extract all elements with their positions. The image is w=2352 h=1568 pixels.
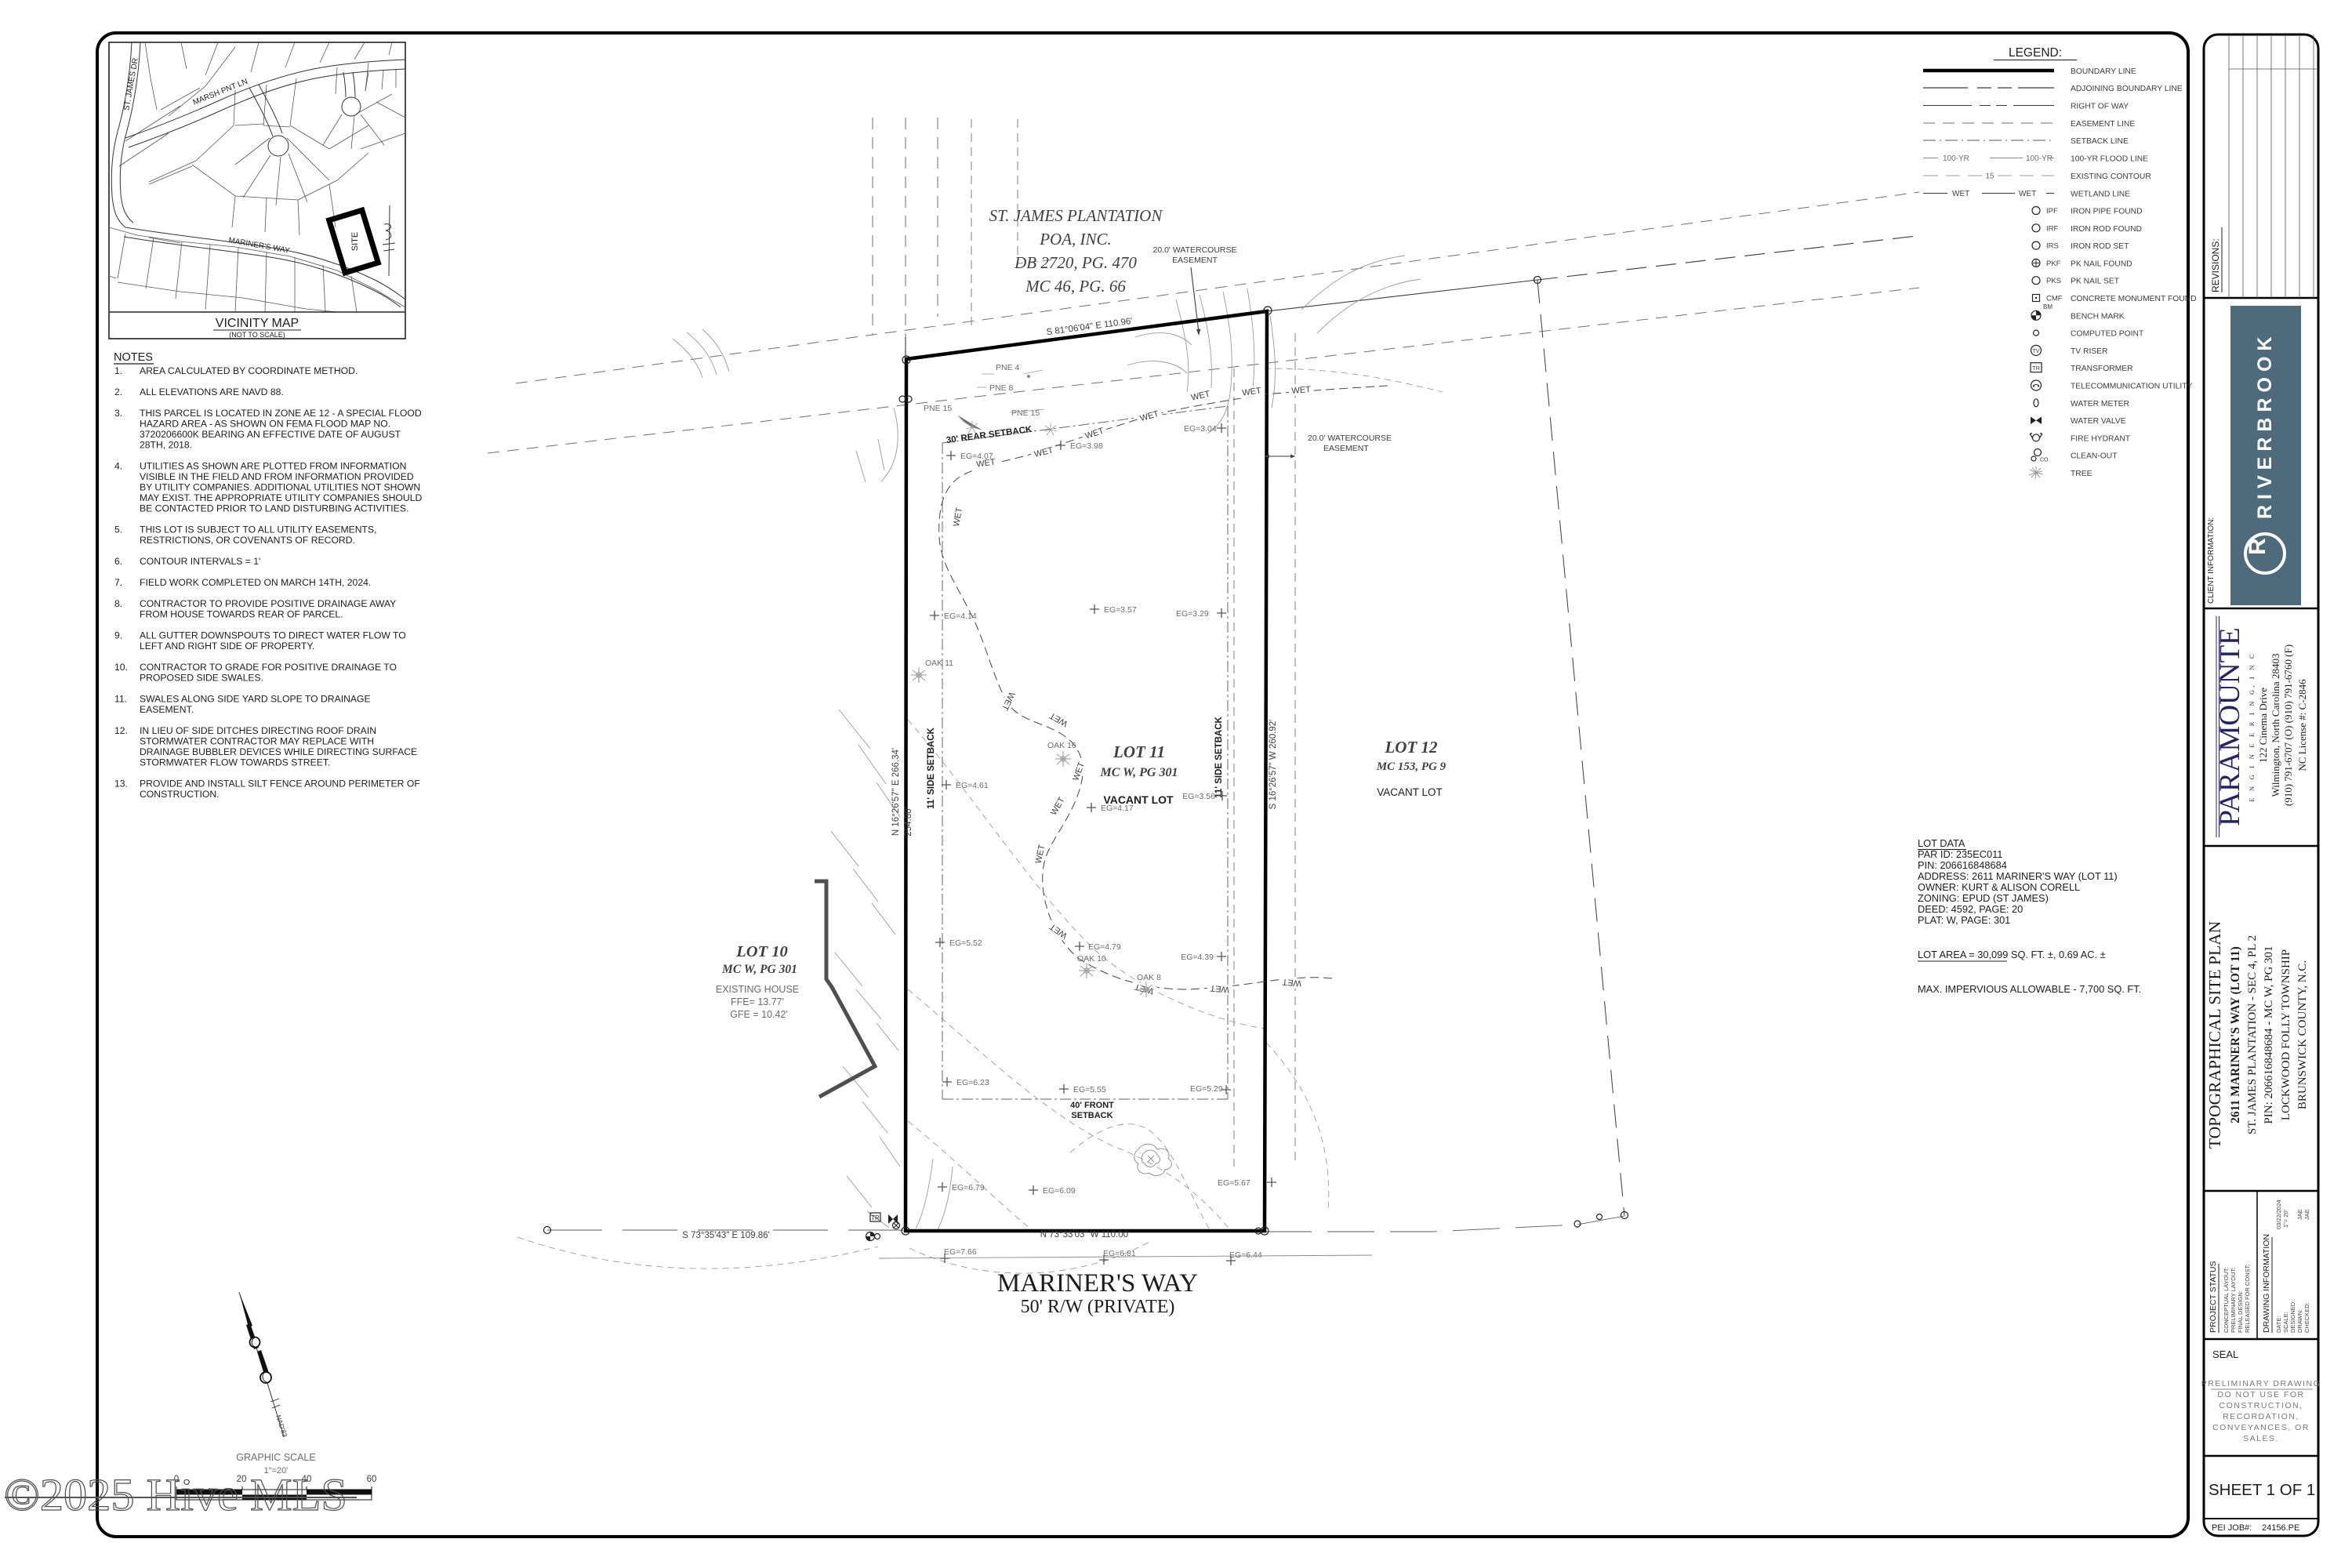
- svg-text:RIVERBROOK: RIVERBROOK: [2254, 332, 2276, 519]
- svg-text:GRAPHIC SCALE: GRAPHIC SCALE: [236, 1452, 315, 1463]
- svg-text:7.: 7.: [114, 577, 122, 588]
- svg-text:5.: 5.: [114, 524, 122, 535]
- svg-text:10.: 10.: [114, 662, 128, 673]
- svg-text:CHECKED:: CHECKED:: [2303, 1302, 2310, 1333]
- svg-text:RELEASED FOR CONST:: RELEASED FOR CONST:: [2244, 1264, 2251, 1333]
- svg-text:IRF: IRF: [2046, 224, 2059, 233]
- svg-text:BY UTILITY COMPANIES. ADDITION: BY UTILITY COMPANIES. ADDITIONAL UTILITI…: [140, 482, 420, 493]
- svg-text:REVISIONS:: REVISIONS:: [2210, 238, 2221, 292]
- svg-text:EG=3.56: EG=3.56: [1182, 792, 1215, 801]
- svg-text:CONTRACTOR TO GRADE FOR POSITI: CONTRACTOR TO GRADE FOR POSITIVE DRAINAG…: [140, 662, 397, 673]
- svg-text:DRAINAGE BUBBLER DEVICES WHILE: DRAINAGE BUBBLER DEVICES WHILE DIRECTING…: [140, 746, 417, 757]
- svg-text:8.: 8.: [114, 598, 122, 609]
- svg-text:3720206600K BEARING AN EFFECTI: 3720206600K BEARING AN EFFECTIVE DATE OF…: [140, 429, 401, 440]
- svg-text:Wilmington, North Carolina 284: Wilmington, North Carolina 28403: [2270, 654, 2281, 797]
- svg-text:ALL ELEVATIONS ARE NAVD 88.: ALL ELEVATIONS ARE NAVD 88.: [140, 387, 284, 397]
- svg-text:1.: 1.: [114, 365, 122, 376]
- svg-text:SETBACK LINE: SETBACK LINE: [2071, 137, 2129, 146]
- svg-text:JAE: JAE: [2303, 1209, 2310, 1220]
- svg-text:©2025 Hive MLS: ©2025 Hive MLS: [4, 1469, 347, 1520]
- svg-text:03/22/2024: 03/22/2024: [2275, 1200, 2282, 1229]
- svg-text:EG=3.57: EG=3.57: [1104, 605, 1137, 615]
- svg-text:ZONING: EPUD (ST JAMES): ZONING: EPUD (ST JAMES): [1918, 892, 2049, 904]
- svg-text:WET: WET: [1291, 385, 1312, 396]
- svg-text:N 16°26'57" E 266.34': N 16°26'57" E 266.34': [891, 748, 901, 836]
- svg-text:IN LIEU OF SIDE DITCHES DIRECT: IN LIEU OF SIDE DITCHES DIRECTING ROOF D…: [140, 725, 376, 736]
- svg-text:PK NAIL FOUND: PK NAIL FOUND: [2071, 260, 2132, 268]
- svg-text:HAZARD AREA - AS SHOWN ON FEMA: HAZARD AREA - AS SHOWN ON FEMA FLOOD MAP…: [140, 419, 390, 430]
- svg-text:TV: TV: [2033, 349, 2040, 354]
- svg-text:CO: CO: [2040, 458, 2049, 463]
- svg-text:FIELD WORK COMPLETED ON MARCH: FIELD WORK COMPLETED ON MARCH 14TH, 2024…: [140, 577, 371, 588]
- svg-text:PRELIMINARY DRAWING: PRELIMINARY DRAWING: [2201, 1379, 2321, 1388]
- svg-text:FROM HOUSE TOWARDS REAR OF PAR: FROM HOUSE TOWARDS REAR OF PARCEL.: [140, 609, 343, 620]
- svg-text:CONTOUR INTERVALS = 1': CONTOUR INTERVALS = 1': [140, 556, 260, 567]
- svg-text:OAK 8: OAK 8: [1137, 973, 1161, 982]
- svg-text:RESTRICTIONS, OR COVENANTS OF: RESTRICTIONS, OR COVENANTS OF RECORD.: [140, 535, 355, 546]
- svg-text:24156.PE: 24156.PE: [2262, 1523, 2299, 1533]
- svg-text:TR: TR: [2032, 365, 2041, 372]
- svg-text:100-YR: 100-YR: [1943, 154, 1969, 163]
- svg-text:EG=5.55: EG=5.55: [1073, 1085, 1106, 1094]
- svg-text:SCALE:: SCALE:: [2282, 1312, 2289, 1333]
- svg-text:EG=3.04: EG=3.04: [1184, 424, 1217, 434]
- svg-text:MAY EXIST. THE APPROPRIATE UTI: MAY EXIST. THE APPROPRIATE UTILITY COMPA…: [140, 492, 422, 503]
- svg-text:WET: WET: [1952, 190, 1969, 198]
- svg-text:LEFT AND RIGHT SIDE OF PROPERT: LEFT AND RIGHT SIDE OF PROPERTY.: [140, 641, 314, 652]
- svg-text:MC 46, PG. 66: MC 46, PG. 66: [1025, 277, 1126, 296]
- svg-text:ADJOINING BOUNDARY LINE: ADJOINING BOUNDARY LINE: [2071, 85, 2183, 93]
- svg-text:EG=6.09: EG=6.09: [1043, 1186, 1076, 1196]
- svg-text:LOT 11: LOT 11: [1112, 742, 1165, 761]
- svg-text:EG=7.66: EG=7.66: [944, 1247, 977, 1257]
- svg-text:VISIBLE IN THE FIELD AND FROM: VISIBLE IN THE FIELD AND FROM INFORMATIO…: [140, 471, 414, 482]
- svg-text:PARAMOUNTE: PARAMOUNTE: [2214, 627, 2246, 826]
- svg-text:STORMWATER CONTRACTOR MAY REPL: STORMWATER CONTRACTOR MAY REPLACE WITH: [140, 736, 374, 747]
- svg-text:BOUNDARY LINE: BOUNDARY LINE: [2071, 67, 2136, 76]
- svg-text:11' SIDE SETBACK: 11' SIDE SETBACK: [927, 727, 936, 808]
- svg-text:PROJECT STATUS: PROJECT STATUS: [2209, 1261, 2218, 1333]
- svg-text:TOPOGRAPHICAL SITE PLAN: TOPOGRAPHICAL SITE PLAN: [2205, 920, 2224, 1149]
- svg-text:WATER METER: WATER METER: [2071, 400, 2129, 408]
- svg-text:DEED: 4592, PAGE: 20: DEED: 4592, PAGE: 20: [1918, 903, 2023, 915]
- svg-text:JAE: JAE: [2296, 1209, 2303, 1220]
- svg-text:IRON ROD SET: IRON ROD SET: [2071, 242, 2129, 251]
- svg-text:VACANT LOT: VACANT LOT: [1103, 793, 1174, 806]
- svg-text:THIS PARCEL IS LOCATED IN ZONE: THIS PARCEL IS LOCATED IN ZONE AE 12 - A…: [140, 408, 422, 419]
- svg-text:(NOT TO SCALE): (NOT TO SCALE): [229, 331, 285, 339]
- svg-text:TRANSFORMER: TRANSFORMER: [2071, 365, 2133, 373]
- svg-text:40' FRONT: 40' FRONT: [1070, 1101, 1114, 1110]
- svg-text:TV RISER: TV RISER: [2071, 347, 2108, 356]
- svg-text:PKS: PKS: [2046, 277, 2061, 285]
- svg-text:CMF: CMF: [2046, 295, 2063, 303]
- svg-text:BM: BM: [2043, 303, 2053, 310]
- svg-text:ST. JAMES PLANTATION: ST. JAMES PLANTATION: [989, 206, 1163, 225]
- svg-text:UTILITIES AS SHOWN ARE PLOTTED: UTILITIES AS SHOWN ARE PLOTTED FROM INFO…: [140, 461, 406, 472]
- svg-text:PAR ID: 235EC011: PAR ID: 235EC011: [1918, 848, 2002, 860]
- svg-text:VICINITY MAP: VICINITY MAP: [216, 317, 299, 330]
- svg-text:EG=3.29: EG=3.29: [1176, 609, 1209, 619]
- svg-text:28TH, 2018.: 28TH, 2018.: [140, 440, 192, 451]
- svg-text:N 73°33'03" W 110.00': N 73°33'03" W 110.00': [1040, 1230, 1131, 1240]
- svg-text:FIRE HYDRANT: FIRE HYDRANT: [2071, 434, 2131, 443]
- svg-text:PROPOSED SIDE SWALES.: PROPOSED SIDE SWALES.: [140, 673, 263, 684]
- svg-text:ALL GUTTER DOWNSPOUTS TO DIREC: ALL GUTTER DOWNSPOUTS TO DIRECT WATER FL…: [140, 630, 406, 641]
- svg-text:MAX. IMPERVIOUS ALLOWABLE - 7,: MAX. IMPERVIOUS ALLOWABLE - 7,700 SQ. FT…: [1918, 983, 2141, 995]
- svg-text:OAK 11: OAK 11: [925, 659, 953, 668]
- svg-text:PKF: PKF: [2046, 260, 2061, 268]
- svg-text:100-YR FLOOD LINE: 100-YR FLOOD LINE: [2071, 155, 2148, 164]
- svg-text:IRON PIPE FOUND: IRON PIPE FOUND: [2071, 208, 2143, 216]
- svg-text:MC W, PG 301: MC W, PG 301: [721, 963, 797, 976]
- svg-text:DRAWING INFORMATION: DRAWING INFORMATION: [2262, 1234, 2271, 1333]
- svg-text:2.: 2.: [114, 387, 122, 397]
- svg-text:DO NOT USE FOR: DO NOT USE FOR: [2217, 1390, 2304, 1399]
- svg-text:OAK 10: OAK 10: [1077, 954, 1106, 964]
- svg-text:WETLAND LINE: WETLAND LINE: [2071, 191, 2130, 199]
- svg-text:POA, INC.: POA, INC.: [1039, 230, 1112, 249]
- svg-text:DESIGNED:: DESIGNED:: [2289, 1301, 2296, 1333]
- svg-text:PRELIMINARY LAYOUT:: PRELIMINARY LAYOUT:: [2230, 1268, 2237, 1333]
- svg-text:PEI JOB#:: PEI JOB#:: [2212, 1523, 2252, 1533]
- svg-text:SETBACK: SETBACK: [1071, 1111, 1112, 1120]
- svg-text:STORMWATER FLOW TOWARDS STREET: STORMWATER FLOW TOWARDS STREET.: [140, 757, 330, 768]
- svg-text:LEGEND:: LEGEND:: [2009, 46, 2062, 60]
- svg-text:SHEET 1 OF 1: SHEET 1 OF 1: [2209, 1481, 2315, 1499]
- svg-text:2611 MARINER'S WAY (LOT 11): 2611 MARINER'S WAY (LOT 11): [2229, 946, 2242, 1123]
- svg-text:SWALES ALONG SIDE YARD SLOPE T: SWALES ALONG SIDE YARD SLOPE TO DRAINAGE: [140, 694, 371, 705]
- svg-text:EG=3.98: EG=3.98: [1070, 441, 1103, 451]
- svg-text:SEAL: SEAL: [2212, 1348, 2238, 1360]
- svg-text:CLEAN-OUT: CLEAN-OUT: [2071, 452, 2118, 461]
- svg-text:OWNER: KURT & ALISON CORELL: OWNER: KURT & ALISON CORELL: [1918, 881, 2080, 893]
- svg-text:TR: TR: [871, 1214, 880, 1221]
- svg-text:CONTRACTOR TO PROVIDE POSITIVE: CONTRACTOR TO PROVIDE POSITIVE DRAINAGE …: [140, 598, 396, 609]
- svg-text:IRS: IRS: [2046, 242, 2059, 251]
- svg-text:LOT 10: LOT 10: [735, 943, 787, 960]
- svg-text:EASEMENT LINE: EASEMENT LINE: [2071, 120, 2135, 129]
- svg-text:EG=4.61: EG=4.61: [956, 781, 989, 790]
- svg-text:13.: 13.: [114, 779, 128, 789]
- svg-text:PIN: 206616848684 - MC W, PG 3: PIN: 206616848684 - MC W, PG 301: [2263, 946, 2275, 1123]
- svg-text:EXISTING CONTOUR: EXISTING CONTOUR: [2071, 172, 2151, 181]
- svg-text:CLIENT INFORMATION:: CLIENT INFORMATION:: [2207, 517, 2216, 604]
- svg-text:EASEMENT: EASEMENT: [1172, 256, 1218, 265]
- svg-text:LOCKWOOD FOLLY TOWNSHIP: LOCKWOOD FOLLY TOWNSHIP: [2280, 949, 2292, 1120]
- svg-text:12.: 12.: [114, 725, 128, 736]
- svg-text:TELECOMMUNICATION UTILITY: TELECOMMUNICATION UTILITY: [2071, 383, 2193, 391]
- svg-text:6.: 6.: [114, 556, 122, 567]
- svg-text:S 73°35'43" E 109.86': S 73°35'43" E 109.86': [682, 1231, 770, 1240]
- svg-text:CONSTRUCTION,: CONSTRUCTION,: [2220, 1401, 2303, 1410]
- svg-text:RECORDATION,: RECORDATION,: [2223, 1412, 2299, 1421]
- svg-text:CONSTRUCTION.: CONSTRUCTION.: [140, 789, 220, 800]
- svg-text:11' SIDE SETBACK: 11' SIDE SETBACK: [1214, 716, 1224, 797]
- svg-text:100-YR: 100-YR: [2026, 154, 2053, 163]
- svg-text:COMPUTED POINT: COMPUTED POINT: [2071, 330, 2144, 339]
- svg-text:1"= 20': 1"= 20': [2282, 1209, 2289, 1228]
- svg-text:TREE: TREE: [2071, 470, 2092, 478]
- svg-text:E N G I N E E R I N G, I N C: E N G I N E E R I N G, I N C: [2248, 652, 2256, 802]
- svg-text:EG=4.39: EG=4.39: [1181, 953, 1214, 962]
- svg-text:OAK 16: OAK 16: [1047, 741, 1076, 750]
- svg-text:EG=5.52: EG=5.52: [949, 938, 982, 948]
- svg-text:MC W, PG 301: MC W, PG 301: [1100, 766, 1178, 779]
- svg-text:DRAWN:: DRAWN:: [2296, 1309, 2303, 1333]
- svg-text:NC License #: C-2846: NC License #: C-2846: [2296, 679, 2308, 771]
- svg-text:MARINER'S WAY: MARINER'S WAY: [997, 1269, 1198, 1298]
- svg-text:WET: WET: [2019, 190, 2036, 198]
- svg-text:S 16°26'57" W 260.92': S 16°26'57" W 260.92': [1269, 720, 1278, 810]
- svg-text:DB 2720, PG. 470: DB 2720, PG. 470: [1014, 253, 1137, 272]
- svg-text:EG=5.29: EG=5.29: [1190, 1084, 1223, 1094]
- svg-text:EG=4.79: EG=4.79: [1088, 942, 1121, 952]
- svg-text:LOT DATA: LOT DATA: [1918, 837, 1965, 849]
- svg-text:THIS LOT IS SUBJECT TO ALL UTI: THIS LOT IS SUBJECT TO ALL UTILITY EASEM…: [140, 524, 377, 535]
- svg-text:EG=6.44: EG=6.44: [1229, 1250, 1262, 1260]
- svg-text:FINAL DESIGN:: FINAL DESIGN:: [2237, 1290, 2244, 1333]
- svg-text:20.0' WATERCOURSE: 20.0' WATERCOURSE: [1152, 245, 1236, 255]
- svg-text:PNE 15: PNE 15: [924, 404, 952, 413]
- svg-text:4.: 4.: [114, 461, 122, 472]
- svg-text:(910) 791-6707 (O) (910) 791-6: (910) 791-6707 (O) (910) 791-6760 (F): [2282, 644, 2294, 806]
- svg-text:EG=4.14: EG=4.14: [944, 612, 977, 621]
- svg-text:AREA CALCULATED BY COORDINATE: AREA CALCULATED BY COORDINATE METHOD.: [140, 365, 358, 376]
- svg-text:PNE 8: PNE 8: [989, 383, 1014, 393]
- svg-text:9.: 9.: [114, 630, 122, 641]
- svg-text:BRUNSWICK COUNTY, N.C.: BRUNSWICK COUNTY, N.C.: [2296, 960, 2309, 1109]
- svg-text:20.0' WATERCOURSE: 20.0' WATERCOURSE: [1308, 434, 1392, 443]
- svg-text:FFE= 13.77': FFE= 13.77': [731, 996, 784, 1007]
- svg-text:EG=6.23: EG=6.23: [956, 1078, 989, 1087]
- svg-text:ST. JAMES PLANTATION - SEC 4,: ST. JAMES PLANTATION - SEC 4, PL 2: [2246, 935, 2259, 1134]
- svg-text:RIGHT OF WAY: RIGHT OF WAY: [2071, 103, 2129, 111]
- svg-text:122 Cinema Drive: 122 Cinema Drive: [2257, 688, 2269, 763]
- svg-text:PNE 4: PNE 4: [996, 363, 1020, 372]
- svg-text:BENCH MARK: BENCH MARK: [2071, 312, 2125, 321]
- svg-text:3.: 3.: [114, 408, 122, 419]
- svg-text:R: R: [2245, 538, 2270, 555]
- svg-text:MC 153, PG 9: MC 153, PG 9: [1376, 760, 1446, 773]
- svg-text:CONCRETE MONUMENT FOUND: CONCRETE MONUMENT FOUND: [2071, 295, 2197, 303]
- svg-text:CONVEYANCES, OR: CONVEYANCES, OR: [2212, 1423, 2310, 1432]
- svg-text:254.80': 254.80': [904, 807, 913, 836]
- svg-text:60: 60: [367, 1475, 377, 1484]
- svg-text:WATER VALVE: WATER VALVE: [2071, 417, 2126, 426]
- svg-text:CONCEPTUAL LAYOUT:: CONCEPTUAL LAYOUT:: [2223, 1267, 2230, 1333]
- svg-text:DATE:: DATE:: [2275, 1316, 2282, 1333]
- svg-text:PIN: 206616848684: PIN: 206616848684: [1918, 859, 2007, 871]
- svg-text:VACANT LOT: VACANT LOT: [1377, 786, 1443, 798]
- svg-text:WET: WET: [1282, 977, 1302, 988]
- svg-text:PLAT: W, PAGE: 301: PLAT: W, PAGE: 301: [1918, 914, 2010, 926]
- svg-text:LOT 12: LOT 12: [1384, 738, 1438, 757]
- svg-text:11.: 11.: [114, 694, 127, 705]
- svg-text:SALES.: SALES.: [2243, 1434, 2279, 1443]
- svg-text:EASEMENT: EASEMENT: [1323, 444, 1369, 453]
- svg-text:15: 15: [1985, 172, 1994, 181]
- svg-text:IPF: IPF: [2046, 207, 2058, 216]
- svg-text:NOTES: NOTES: [114, 351, 153, 364]
- svg-text:PROVIDE AND INSTALL SILT FENCE: PROVIDE AND INSTALL SILT FENCE AROUND PE…: [140, 779, 420, 789]
- svg-text:EASEMENT.: EASEMENT.: [140, 704, 194, 715]
- svg-text:PK NAIL SET: PK NAIL SET: [2071, 278, 2120, 286]
- svg-text:BE CONTACTED PRIOR TO LAND DIS: BE CONTACTED PRIOR TO LAND DISTURBING AC…: [140, 503, 408, 514]
- svg-text:SITE: SITE: [350, 232, 360, 251]
- svg-text:EG=6.79: EG=6.79: [952, 1183, 985, 1192]
- svg-text:EG=5.67: EG=5.67: [1218, 1178, 1250, 1188]
- svg-text:LOT AREA = 30,099 SQ. FT. ±, 0: LOT AREA = 30,099 SQ. FT. ±, 0.69 AC. ±: [1918, 949, 2106, 960]
- svg-text:GFE = 10.42': GFE = 10.42': [730, 1009, 788, 1020]
- svg-text:EG=4.07: EG=4.07: [960, 452, 993, 461]
- svg-text:EXISTING HOUSE: EXISTING HOUSE: [716, 984, 799, 995]
- svg-text:ADDRESS: 2611 MARINER'S WAY (L: ADDRESS: 2611 MARINER'S WAY (LOT 11): [1918, 870, 2118, 882]
- svg-text:50' R/W (PRIVATE): 50' R/W (PRIVATE): [1021, 1297, 1175, 1317]
- svg-text:IRON ROD FOUND: IRON ROD FOUND: [2071, 225, 2142, 234]
- svg-text:WET: WET: [1210, 983, 1230, 994]
